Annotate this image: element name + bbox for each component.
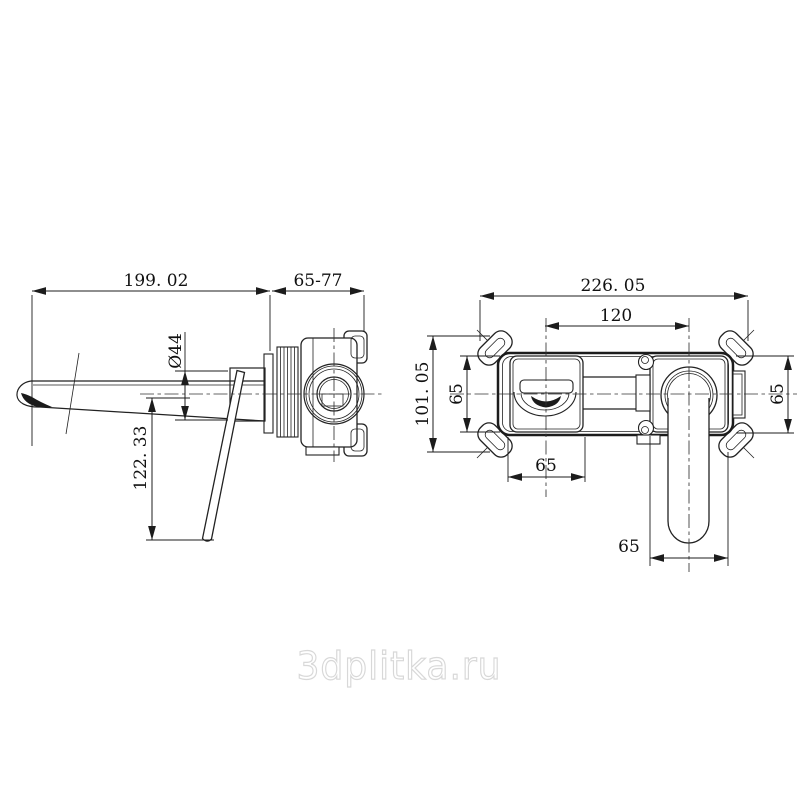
faucet-technical-drawing: 199. 02 65-77 Ø44 122. 33 [0,0,800,800]
technical-drawing-page: 199. 02 65-77 Ø44 122. 33 [0,0,800,800]
side-view: 199. 02 65-77 Ø44 122. 33 [17,271,383,541]
dim-text-spout-plate-width: 65 [535,456,557,476]
handle-grip [668,398,709,543]
aerator-centerline [66,353,79,434]
dim-text-handle-drop: 122. 33 [131,426,151,491]
front-view: 226. 05 120 101. 05 65 65 65 65 [413,276,797,572]
dim-text-wall-depth: 65-77 [293,271,342,291]
dim-text-spout-diameter: Ø44 [166,333,186,369]
dim-text-handle-plate-width: 65 [618,537,640,557]
side-tab [733,371,745,418]
dim-text-body-height-left: 65 [447,383,467,405]
dim-text-spout-reach: 199. 02 [124,271,189,291]
watermark: 3dplitka.ru [297,644,502,688]
dim-text-spout-to-handle: 120 [600,306,632,326]
dim-text-overall-width: 226. 05 [581,276,646,296]
dim-text-overall-height: 101. 05 [413,362,433,427]
spout-front-bar [520,380,573,393]
bracket-foot [637,435,660,444]
connector-flange [636,375,650,411]
dim-text-body-height-right: 65 [768,383,788,405]
handle-lever-blade [203,371,245,542]
